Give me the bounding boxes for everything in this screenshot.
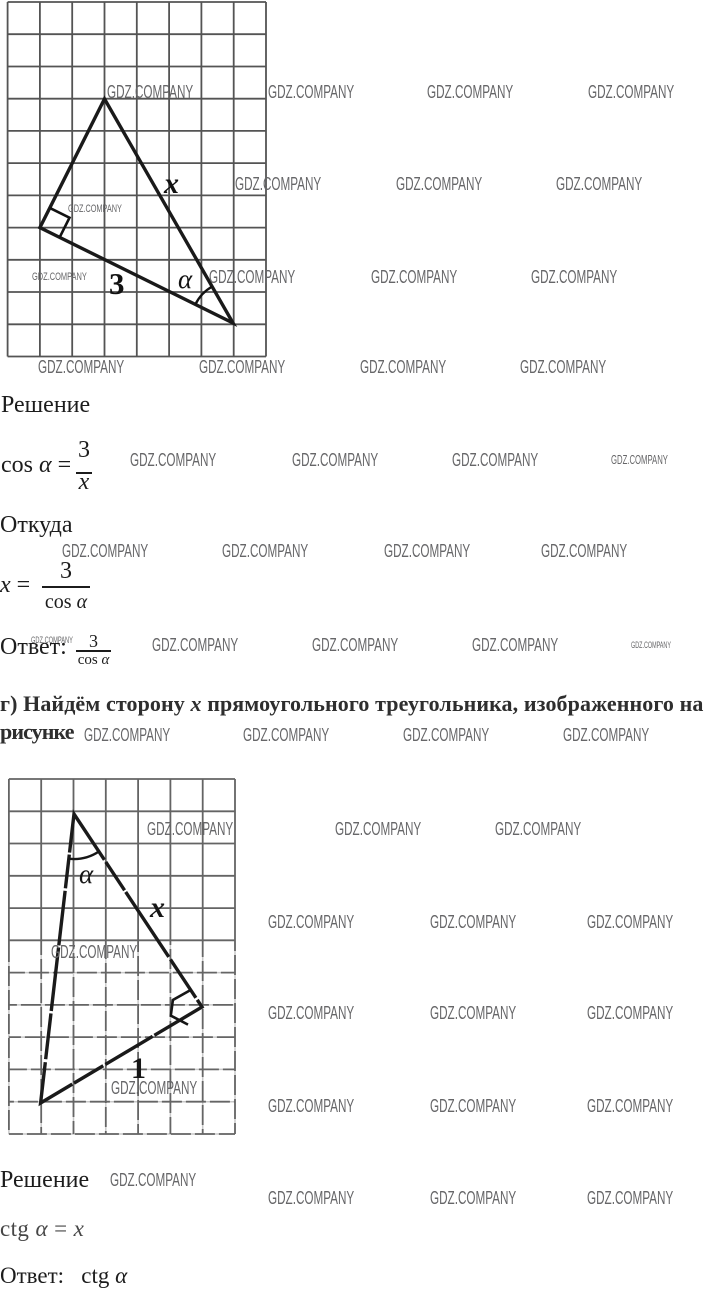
svg-text:GDZ.COMPANY: GDZ.COMPANY: [31, 635, 73, 646]
svg-text:GDZ.COMPANY: GDZ.COMPANY: [588, 82, 674, 102]
svg-text:GDZ.COMPANY: GDZ.COMPANY: [268, 1096, 354, 1116]
svg-text:GDZ.COMPANY: GDZ.COMPANY: [427, 82, 513, 102]
svg-text:GDZ.COMPANY: GDZ.COMPANY: [222, 541, 308, 561]
svg-text:GDZ.COMPANY: GDZ.COMPANY: [268, 1188, 354, 1208]
svg-text:GDZ.COMPANY: GDZ.COMPANY: [587, 1188, 673, 1208]
svg-text:GDZ.COMPANY: GDZ.COMPANY: [556, 174, 642, 194]
svg-text:GDZ.COMPANY: GDZ.COMPANY: [130, 450, 216, 470]
svg-text:GDZ.COMPANY: GDZ.COMPANY: [268, 912, 354, 932]
svg-text:GDZ.COMPANY: GDZ.COMPANY: [587, 1096, 673, 1116]
svg-text:GDZ.COMPANY: GDZ.COMPANY: [541, 541, 627, 561]
svg-text:GDZ.COMPANY: GDZ.COMPANY: [360, 357, 446, 377]
svg-text:GDZ.COMPANY: GDZ.COMPANY: [587, 912, 673, 932]
svg-text:GDZ.COMPANY: GDZ.COMPANY: [268, 82, 354, 102]
svg-text:GDZ.COMPANY: GDZ.COMPANY: [209, 267, 295, 287]
svg-text:GDZ.COMPANY: GDZ.COMPANY: [472, 635, 558, 655]
svg-text:GDZ.COMPANY: GDZ.COMPANY: [335, 819, 421, 839]
svg-text:GDZ.COMPANY: GDZ.COMPANY: [110, 1170, 196, 1190]
svg-text:GDZ.COMPANY: GDZ.COMPANY: [32, 269, 87, 282]
svg-text:GDZ.COMPANY: GDZ.COMPANY: [235, 174, 321, 194]
svg-text:GDZ.COMPANY: GDZ.COMPANY: [199, 357, 285, 377]
svg-text:GDZ.COMPANY: GDZ.COMPANY: [147, 819, 233, 839]
svg-text:GDZ.COMPANY: GDZ.COMPANY: [430, 1003, 516, 1023]
svg-text:GDZ.COMPANY: GDZ.COMPANY: [631, 640, 671, 651]
svg-text:GDZ.COMPANY: GDZ.COMPANY: [520, 357, 606, 377]
svg-text:GDZ.COMPANY: GDZ.COMPANY: [107, 82, 193, 102]
svg-text:GDZ.COMPANY: GDZ.COMPANY: [430, 1096, 516, 1116]
svg-text:GDZ.COMPANY: GDZ.COMPANY: [292, 450, 378, 470]
svg-text:GDZ.COMPANY: GDZ.COMPANY: [371, 267, 457, 287]
svg-text:GDZ.COMPANY: GDZ.COMPANY: [38, 357, 124, 377]
svg-text:GDZ.COMPANY: GDZ.COMPANY: [51, 942, 137, 962]
svg-text:GDZ.COMPANY: GDZ.COMPANY: [430, 912, 516, 932]
svg-text:GDZ.COMPANY: GDZ.COMPANY: [268, 1003, 354, 1023]
svg-text:GDZ.COMPANY: GDZ.COMPANY: [312, 635, 398, 655]
svg-text:GDZ.COMPANY: GDZ.COMPANY: [152, 635, 238, 655]
svg-text:GDZ.COMPANY: GDZ.COMPANY: [563, 725, 649, 745]
svg-text:GDZ.COMPANY: GDZ.COMPANY: [68, 203, 123, 215]
svg-text:GDZ.COMPANY: GDZ.COMPANY: [452, 450, 538, 470]
svg-text:GDZ.COMPANY: GDZ.COMPANY: [587, 1003, 673, 1023]
svg-text:GDZ.COMPANY: GDZ.COMPANY: [111, 1078, 197, 1098]
svg-text:GDZ.COMPANY: GDZ.COMPANY: [62, 541, 148, 561]
svg-text:GDZ.COMPANY: GDZ.COMPANY: [611, 454, 668, 467]
svg-text:GDZ.COMPANY: GDZ.COMPANY: [495, 819, 581, 839]
svg-text:GDZ.COMPANY: GDZ.COMPANY: [403, 725, 489, 745]
svg-text:GDZ.COMPANY: GDZ.COMPANY: [396, 174, 482, 194]
svg-text:GDZ.COMPANY: GDZ.COMPANY: [430, 1188, 516, 1208]
svg-text:GDZ.COMPANY: GDZ.COMPANY: [384, 541, 470, 561]
svg-text:GDZ.COMPANY: GDZ.COMPANY: [531, 267, 617, 287]
svg-text:GDZ.COMPANY: GDZ.COMPANY: [243, 725, 329, 745]
svg-text:GDZ.COMPANY: GDZ.COMPANY: [84, 725, 170, 745]
